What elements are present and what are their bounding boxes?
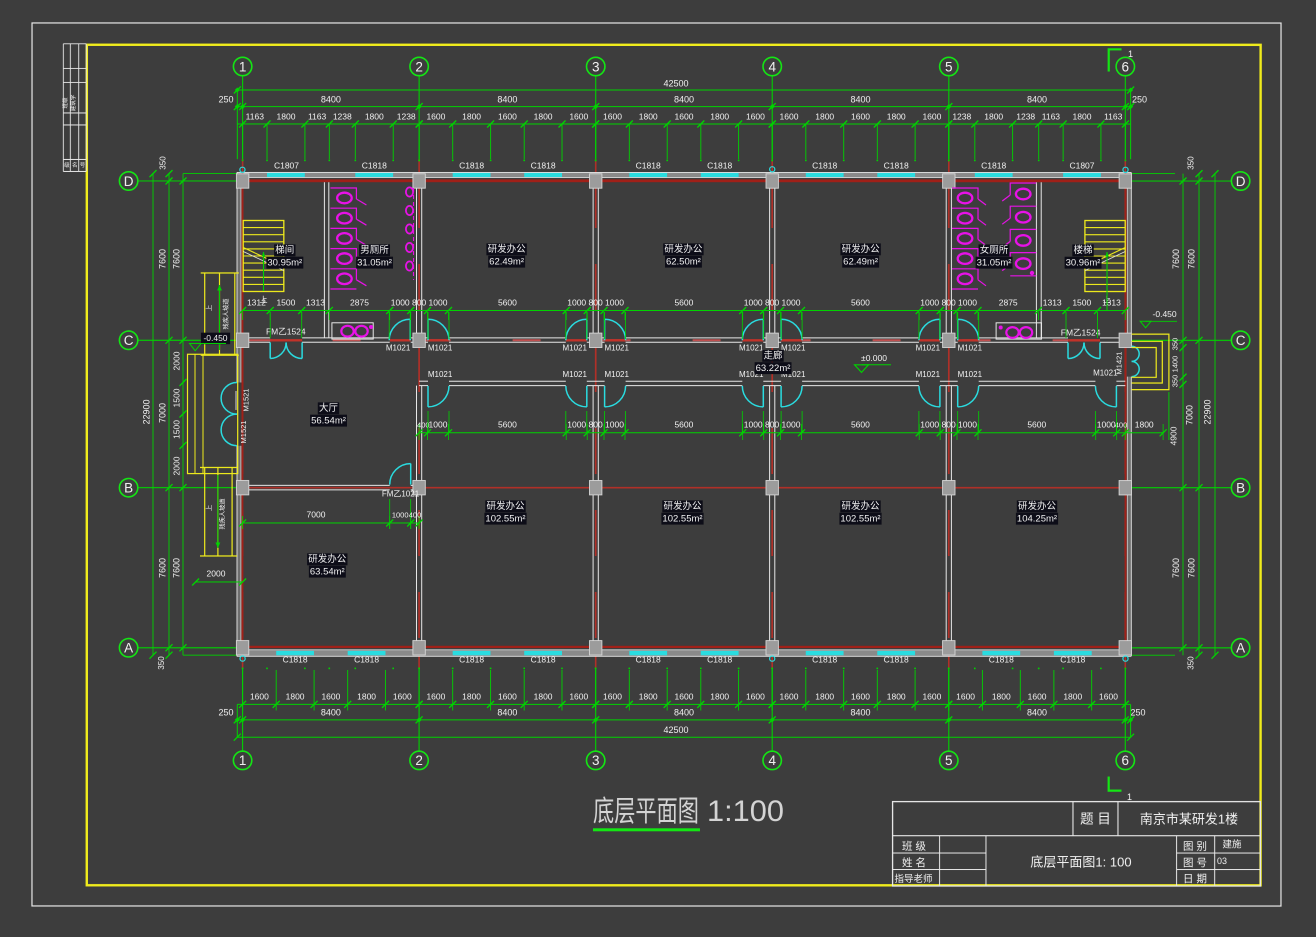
svg-text:1000: 1000	[605, 419, 624, 429]
svg-text:5: 5	[945, 59, 953, 74]
svg-text:1600: 1600	[922, 112, 941, 122]
svg-text:1800: 1800	[462, 691, 481, 701]
svg-text:底层平面图: 底层平面图	[593, 795, 699, 828]
svg-text:C1818: C1818	[981, 161, 1006, 171]
svg-text:上: 上	[204, 304, 213, 311]
svg-text:上: 上	[260, 295, 268, 304]
svg-text:1800: 1800	[462, 111, 481, 121]
svg-text:30.95m²: 30.95m²	[267, 257, 302, 268]
svg-text:1400: 1400	[1171, 356, 1180, 373]
svg-text:8400: 8400	[321, 707, 341, 717]
svg-text:31.05m²: 31.05m²	[977, 257, 1012, 268]
svg-text:4: 4	[768, 59, 776, 74]
svg-text:1800: 1800	[815, 112, 834, 122]
svg-text:62.50m²: 62.50m²	[666, 256, 701, 267]
svg-text:7600: 7600	[158, 249, 168, 269]
svg-text:2000: 2000	[207, 568, 226, 578]
svg-text:1238: 1238	[397, 111, 416, 121]
svg-text:C1807: C1807	[274, 161, 299, 171]
svg-text:7000: 7000	[1185, 405, 1195, 425]
svg-text:5600: 5600	[498, 419, 517, 429]
svg-text:63.54m²: 63.54m²	[310, 566, 345, 577]
svg-text:2: 2	[415, 59, 423, 74]
svg-text:1: 1	[1127, 792, 1132, 802]
svg-text:1800: 1800	[357, 691, 376, 701]
svg-text:3: 3	[592, 59, 600, 74]
svg-text:级: 级	[64, 161, 70, 169]
svg-text:2875: 2875	[350, 297, 369, 307]
svg-text:1600: 1600	[426, 691, 445, 701]
svg-text:350: 350	[157, 656, 166, 670]
svg-text:7600: 7600	[171, 558, 181, 578]
svg-text:1800: 1800	[277, 111, 296, 121]
svg-text:1600: 1600	[780, 112, 799, 122]
svg-text:C1818: C1818	[812, 655, 837, 665]
svg-text:M1021: M1021	[958, 344, 983, 353]
svg-text:5600: 5600	[498, 297, 517, 307]
svg-text:FM乙1524: FM乙1524	[1061, 328, 1101, 338]
svg-text:8400: 8400	[321, 95, 341, 105]
svg-text:1600: 1600	[250, 691, 269, 701]
svg-text:2875: 2875	[999, 298, 1018, 308]
svg-text:D: D	[124, 174, 134, 189]
svg-text:C1818: C1818	[1060, 655, 1085, 665]
svg-text:1163: 1163	[1042, 112, 1061, 122]
svg-text:1313: 1313	[1043, 298, 1062, 308]
svg-text:4: 4	[768, 753, 776, 768]
svg-text:研发办公: 研发办公	[488, 243, 527, 255]
svg-text:1600: 1600	[498, 691, 517, 701]
svg-text:03: 03	[1217, 856, 1227, 866]
svg-text:1000: 1000	[958, 298, 977, 308]
svg-text:1000: 1000	[782, 419, 801, 429]
svg-text:56.54m²: 56.54m²	[311, 415, 346, 426]
svg-text:62.49m²: 62.49m²	[489, 256, 524, 267]
svg-text:±0.000: ±0.000	[861, 353, 887, 363]
svg-text:1313: 1313	[306, 297, 325, 307]
svg-text:800: 800	[942, 298, 956, 308]
svg-text:1600: 1600	[675, 692, 694, 702]
svg-text:102.55m²: 102.55m²	[840, 513, 880, 524]
svg-text:1800: 1800	[710, 112, 729, 122]
svg-text:1800: 1800	[710, 692, 729, 702]
svg-text:6: 6	[1122, 59, 1130, 74]
svg-text:1000: 1000	[744, 298, 763, 308]
svg-text:1600: 1600	[321, 691, 340, 701]
svg-text:底层平面图1: 100: 底层平面图1: 100	[1030, 855, 1131, 870]
svg-text:图 号: 图 号	[1183, 857, 1207, 869]
svg-text:1000: 1000	[920, 298, 939, 308]
svg-text:1000: 1000	[391, 297, 410, 307]
svg-text:1000: 1000	[429, 419, 448, 429]
svg-text:1600: 1600	[569, 691, 588, 701]
svg-text:残疾人坡道: 残疾人坡道	[222, 299, 230, 330]
svg-text:1: 1	[239, 59, 247, 74]
svg-text:7600: 7600	[1171, 249, 1181, 269]
svg-text:5: 5	[945, 753, 953, 768]
svg-text:C: C	[1236, 333, 1246, 348]
svg-text:C: C	[124, 333, 134, 348]
svg-text:42500: 42500	[664, 79, 689, 89]
svg-text:8400: 8400	[850, 708, 870, 718]
svg-text:研发办公: 研发办公	[308, 553, 347, 565]
svg-text:22900: 22900	[142, 399, 152, 424]
svg-text:1500: 1500	[1072, 298, 1091, 308]
svg-text:1800: 1800	[365, 111, 384, 121]
svg-text:1238: 1238	[1016, 112, 1035, 122]
svg-text:350: 350	[1171, 375, 1180, 388]
svg-text:1600: 1600	[780, 692, 799, 702]
svg-text:7000: 7000	[307, 509, 326, 519]
svg-text:1000: 1000	[958, 419, 977, 429]
svg-text:C1818: C1818	[636, 654, 661, 664]
svg-text:1000: 1000	[1097, 419, 1116, 429]
svg-text:A: A	[124, 641, 133, 656]
svg-text:22900: 22900	[1203, 400, 1213, 425]
svg-text:2: 2	[415, 753, 423, 768]
svg-text:M1021: M1021	[958, 370, 983, 379]
svg-text:30.96m²: 30.96m²	[1066, 257, 1101, 268]
svg-text:1600: 1600	[603, 111, 622, 121]
svg-text:1: 1	[239, 753, 247, 768]
svg-text:梯间: 梯间	[275, 244, 294, 256]
svg-text:南京市某研发1楼: 南京市某研发1楼	[1140, 812, 1238, 827]
svg-text:M1021: M1021	[781, 344, 806, 353]
svg-text:1163: 1163	[1104, 112, 1123, 122]
svg-text:研发办公: 研发办公	[1018, 500, 1057, 512]
svg-text:6: 6	[1122, 753, 1130, 768]
svg-text:1000: 1000	[920, 419, 939, 429]
svg-text:1600: 1600	[603, 691, 622, 701]
svg-text:1238: 1238	[952, 112, 971, 122]
svg-text:1238: 1238	[333, 111, 352, 121]
svg-text:8400: 8400	[1027, 708, 1047, 718]
svg-text:1500: 1500	[172, 420, 182, 439]
svg-text:走廊: 走廊	[763, 350, 783, 362]
svg-text:1800: 1800	[815, 692, 834, 702]
svg-text:M1021: M1021	[386, 343, 411, 352]
svg-text:5600: 5600	[851, 419, 870, 429]
svg-text:M1021: M1021	[916, 370, 941, 379]
svg-text:M1021: M1021	[739, 344, 764, 353]
svg-text:1800: 1800	[887, 692, 906, 702]
svg-text:2000: 2000	[172, 351, 182, 370]
svg-text:7000: 7000	[158, 403, 168, 423]
svg-text:残疾人坡道: 残疾人坡道	[218, 499, 226, 530]
svg-text:建筑学: 建筑学	[69, 94, 77, 111]
svg-text:1000: 1000	[429, 297, 448, 307]
svg-text:8400: 8400	[1027, 95, 1047, 105]
svg-text:1000: 1000	[605, 297, 624, 307]
svg-text:研发办公: 研发办公	[663, 500, 702, 512]
svg-text:1500: 1500	[172, 388, 182, 407]
svg-text:1000: 1000	[782, 298, 801, 308]
svg-text:C1818: C1818	[989, 655, 1014, 665]
svg-text:250: 250	[1132, 95, 1147, 105]
svg-text:C1818: C1818	[707, 655, 732, 665]
svg-text:1800: 1800	[286, 691, 305, 701]
svg-text:C1818: C1818	[362, 161, 387, 171]
svg-text:研发办公: 研发办公	[841, 500, 880, 512]
svg-text:42500: 42500	[663, 725, 688, 735]
svg-text:研发办公: 研发办公	[842, 243, 881, 255]
svg-text:M1021: M1021	[562, 370, 587, 379]
svg-text:350: 350	[1171, 338, 1180, 351]
svg-text:400: 400	[409, 510, 422, 519]
svg-text:2000: 2000	[171, 456, 181, 475]
svg-text:5600: 5600	[674, 298, 693, 308]
svg-text:350: 350	[1186, 656, 1195, 670]
svg-text:8400: 8400	[674, 708, 694, 718]
svg-text:C1818: C1818	[531, 654, 556, 664]
svg-text:1600: 1600	[393, 691, 412, 701]
svg-text:1600: 1600	[851, 692, 870, 702]
svg-text:图 别: 图 别	[1183, 841, 1207, 853]
svg-text:63.22m²: 63.22m²	[756, 363, 791, 374]
svg-text:8400: 8400	[674, 95, 694, 105]
svg-text:1500: 1500	[276, 297, 295, 307]
svg-text:250: 250	[219, 95, 234, 105]
svg-text:5600: 5600	[851, 298, 870, 308]
svg-text:C1818: C1818	[812, 161, 837, 171]
svg-text:1600: 1600	[851, 112, 870, 122]
svg-text:C1818: C1818	[707, 161, 732, 171]
svg-text:C1818: C1818	[459, 161, 484, 171]
svg-text:800: 800	[765, 298, 779, 308]
svg-text:350: 350	[159, 156, 168, 170]
svg-text:号: 号	[80, 162, 86, 169]
svg-text:C1818: C1818	[283, 654, 308, 664]
svg-text:题 目: 题 目	[1080, 812, 1111, 827]
svg-text:M1521: M1521	[239, 421, 248, 444]
svg-text:楼梯: 楼梯	[1074, 244, 1094, 256]
svg-text:250: 250	[1130, 708, 1145, 718]
svg-text:M1021: M1021	[562, 343, 587, 352]
svg-text:3: 3	[592, 753, 600, 768]
svg-text:800: 800	[589, 419, 603, 429]
svg-text:-0.450: -0.450	[1153, 309, 1177, 319]
svg-text:M1021: M1021	[604, 370, 629, 379]
svg-text:1000: 1000	[392, 510, 409, 519]
svg-text:建施: 建施	[1222, 839, 1242, 851]
svg-text:M1521: M1521	[241, 389, 250, 412]
svg-text:M1021: M1021	[916, 344, 941, 353]
svg-text:1800: 1800	[639, 111, 658, 121]
svg-text:1800: 1800	[1073, 112, 1092, 122]
svg-text:1800: 1800	[639, 691, 658, 701]
svg-text:800: 800	[942, 419, 956, 429]
svg-text:上: 上	[204, 504, 213, 511]
svg-text:1000: 1000	[567, 297, 586, 307]
svg-text:C1807: C1807	[1069, 161, 1094, 171]
svg-text:名: 名	[72, 161, 78, 169]
svg-text:1800: 1800	[1135, 419, 1154, 429]
svg-text:女厕所: 女厕所	[980, 244, 1009, 256]
svg-text:1600: 1600	[426, 111, 445, 121]
svg-text:7600: 7600	[1187, 249, 1197, 269]
svg-text:大厅: 大厅	[319, 402, 339, 414]
svg-text:800: 800	[765, 419, 779, 429]
svg-text:1600: 1600	[1028, 692, 1047, 702]
svg-text:102.55m²: 102.55m²	[662, 513, 702, 524]
svg-text:日 期: 日 期	[1183, 873, 1207, 885]
svg-text:1000: 1000	[567, 419, 586, 429]
svg-text:1800: 1800	[534, 691, 553, 701]
svg-text:-0.450: -0.450	[203, 333, 227, 343]
svg-text:研发办公: 研发办公	[664, 243, 703, 255]
svg-text:1600: 1600	[498, 111, 517, 121]
svg-text:B: B	[124, 480, 133, 495]
svg-text:D: D	[1236, 174, 1246, 189]
svg-text:姓 名: 姓 名	[902, 856, 926, 869]
svg-text:FM乙1021: FM乙1021	[382, 489, 420, 498]
svg-text:800: 800	[589, 297, 603, 307]
svg-text:C1818: C1818	[459, 654, 484, 664]
svg-text:1800: 1800	[992, 692, 1011, 702]
svg-text:5600: 5600	[1027, 419, 1046, 429]
svg-text:8400: 8400	[497, 95, 517, 105]
svg-text:1600: 1600	[1099, 692, 1118, 702]
svg-text:1000: 1000	[744, 419, 763, 429]
svg-text:8400: 8400	[851, 95, 871, 105]
svg-text:B: B	[1236, 481, 1245, 496]
svg-text:250: 250	[218, 707, 233, 717]
svg-text:1800: 1800	[1063, 692, 1082, 702]
svg-text:1800: 1800	[534, 111, 553, 121]
svg-text:1800: 1800	[887, 112, 906, 122]
svg-text:C1818: C1818	[531, 161, 556, 171]
svg-text:指导老师: 指导老师	[894, 873, 932, 885]
svg-text:104.25m²: 104.25m²	[1017, 513, 1057, 524]
svg-text:M1021: M1021	[428, 343, 453, 352]
svg-text:A: A	[1236, 641, 1245, 656]
svg-text:8400: 8400	[497, 707, 517, 717]
svg-text:1600: 1600	[922, 692, 941, 702]
svg-text:M1021: M1021	[428, 370, 453, 379]
svg-text:350: 350	[1187, 156, 1196, 170]
svg-text:800: 800	[412, 297, 426, 307]
svg-text:1600: 1600	[675, 112, 694, 122]
svg-text:FM乙1524: FM乙1524	[266, 326, 306, 336]
svg-text:4900: 4900	[1169, 426, 1179, 445]
svg-text:62.49m²: 62.49m²	[843, 256, 878, 267]
svg-text:1600: 1600	[746, 692, 765, 702]
svg-text:1800: 1800	[984, 112, 1003, 122]
svg-text:班 级: 班 级	[902, 841, 926, 853]
svg-text:M1021: M1021	[604, 343, 629, 352]
svg-text:1163: 1163	[308, 111, 327, 121]
svg-text:1600: 1600	[956, 692, 975, 702]
svg-text:C1818: C1818	[884, 161, 909, 171]
svg-text:1163: 1163	[246, 111, 265, 121]
svg-text:C1818: C1818	[354, 654, 379, 664]
svg-text:7600: 7600	[172, 249, 182, 269]
svg-text:7600: 7600	[157, 558, 167, 578]
svg-text:1600: 1600	[746, 112, 765, 122]
svg-text:31.05m²: 31.05m²	[357, 257, 392, 268]
svg-text:7600: 7600	[1171, 558, 1181, 578]
svg-text:1: 1	[1128, 49, 1133, 59]
svg-text:男厕所: 男厕所	[360, 245, 389, 256]
svg-text:M1421: M1421	[1115, 352, 1124, 375]
svg-text:1600: 1600	[569, 111, 588, 121]
svg-text:班级: 班级	[61, 97, 69, 109]
svg-text:C1818: C1818	[636, 161, 661, 171]
svg-text:1:100: 1:100	[707, 795, 784, 828]
svg-text:研发办公: 研发办公	[486, 500, 525, 512]
svg-text:5600: 5600	[674, 419, 693, 429]
svg-text:C1818: C1818	[884, 655, 909, 665]
svg-text:102.55m²: 102.55m²	[485, 513, 525, 524]
svg-text:7600: 7600	[1186, 558, 1196, 578]
